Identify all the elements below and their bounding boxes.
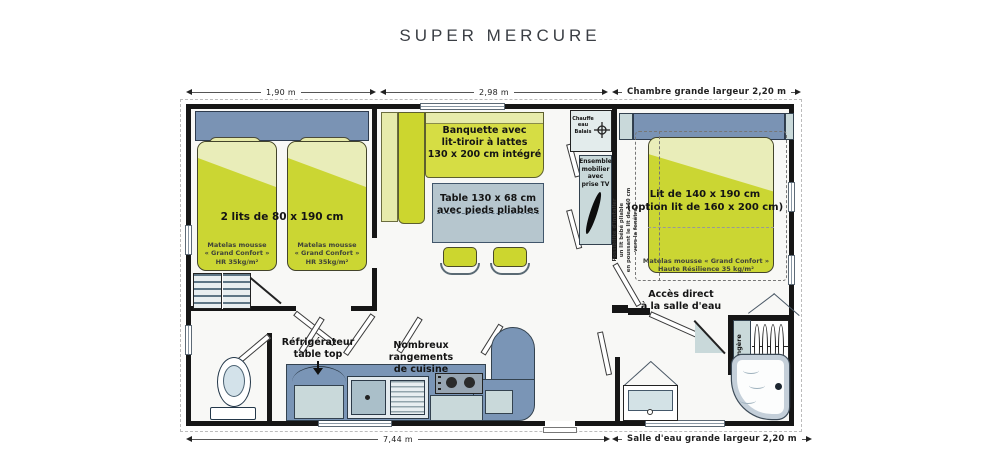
washbasin-mirror-line [624,361,651,386]
arrow-right-icon [795,89,801,95]
toilet-tank [210,407,256,420]
wall [372,268,377,310]
fridge [294,385,344,419]
floor-plan: 2 lits de 80 x 190 cm Matelas mousse « G… [186,104,794,426]
window [788,255,795,285]
chair-back [490,263,530,275]
water-squiggle [740,397,756,404]
door-leaf [649,311,699,338]
shower-drain [775,383,782,390]
banquette-back-strip [426,113,543,124]
wall [615,357,620,421]
dashed-line [648,227,774,228]
window-pane [619,113,633,140]
fridge-arrow-icon [313,368,323,375]
water-heater-label: Chauffe eau Balais [571,116,595,135]
bed-sheet [198,142,276,192]
hob [435,373,483,394]
dimension-top-left: 1,90 m [186,86,376,98]
dimension-top-mid: 2,98 m [380,86,608,98]
banquette-label: Banquette avec lit-tiroir à lattes 130 x… [425,125,544,161]
door-leaf [597,331,612,375]
shelf-divider [221,273,223,309]
mattress-note: Matelas mousse « Grand Confort » HR 35kg… [199,241,275,266]
window [318,420,392,427]
table-label: Table 130 x 68 cm avec pieds pliables [432,193,544,217]
twin-beds-label: 2 lits de 80 x 190 cm [191,211,373,224]
baby-bed-note: Possibilité d'installer un lit bébé plia… [612,181,646,279]
window [185,325,192,355]
tv-cabinet-label: Ensemble mobilier avec prise TV [579,158,612,188]
washbasin-faucet [647,409,653,415]
window [788,182,795,212]
banquette-back [381,112,398,222]
toilet-seat [223,365,245,397]
kitchen-cabinet [430,395,483,421]
storage-label: Nombreux rangements de cuisine [366,340,476,376]
kitchen-cabinet [485,390,513,414]
dimension-top-right: Chambre grande largeur 2,20 m [612,86,794,98]
mattress-note: Matelas mousse « Grand Confort » Haute R… [631,257,781,274]
hob-knobs [438,376,441,391]
banquette-seat-vertical [398,112,425,224]
wall [351,306,377,311]
arrow-right-icon [602,89,608,95]
vent-icon [594,122,610,138]
dimension-bottom-right: Salle d'eau grande largeur 2,20 m [612,433,794,445]
bed-sheet [288,142,366,192]
burner-icon [464,377,475,388]
washbasin [628,390,673,411]
mattress-note: Matelas mousse « Grand Confort » HR 35kg… [289,241,365,266]
window [420,103,505,110]
bathroom-access-label: Accès direct à la salle d'eau [621,289,741,313]
entrance-gap [545,421,575,426]
arrow-right-icon [806,436,812,442]
shelf-diagonal [250,277,282,304]
chair-back [440,263,480,275]
window [185,225,192,255]
page-title: SUPER MERCURE [0,26,1000,46]
window [645,420,725,427]
double-bed-label: Lit de 140 x 190 cm (option lit de 160 x… [621,189,789,214]
burner-icon [446,377,457,388]
cabinet-open-door-line [748,293,775,314]
sink-drainer [390,380,425,415]
entrance-step [543,427,577,433]
sink-drain [365,395,370,400]
water-squiggle [743,367,759,374]
water-squiggle [749,382,765,389]
arrow-right-icon [370,89,376,95]
arrow-right-icon [604,436,610,442]
washbasin-mirror-line [650,361,677,386]
fridge-label: Réfrigérateur table top [268,337,368,361]
dimension-bottom-left: 7,44 m [186,433,610,445]
